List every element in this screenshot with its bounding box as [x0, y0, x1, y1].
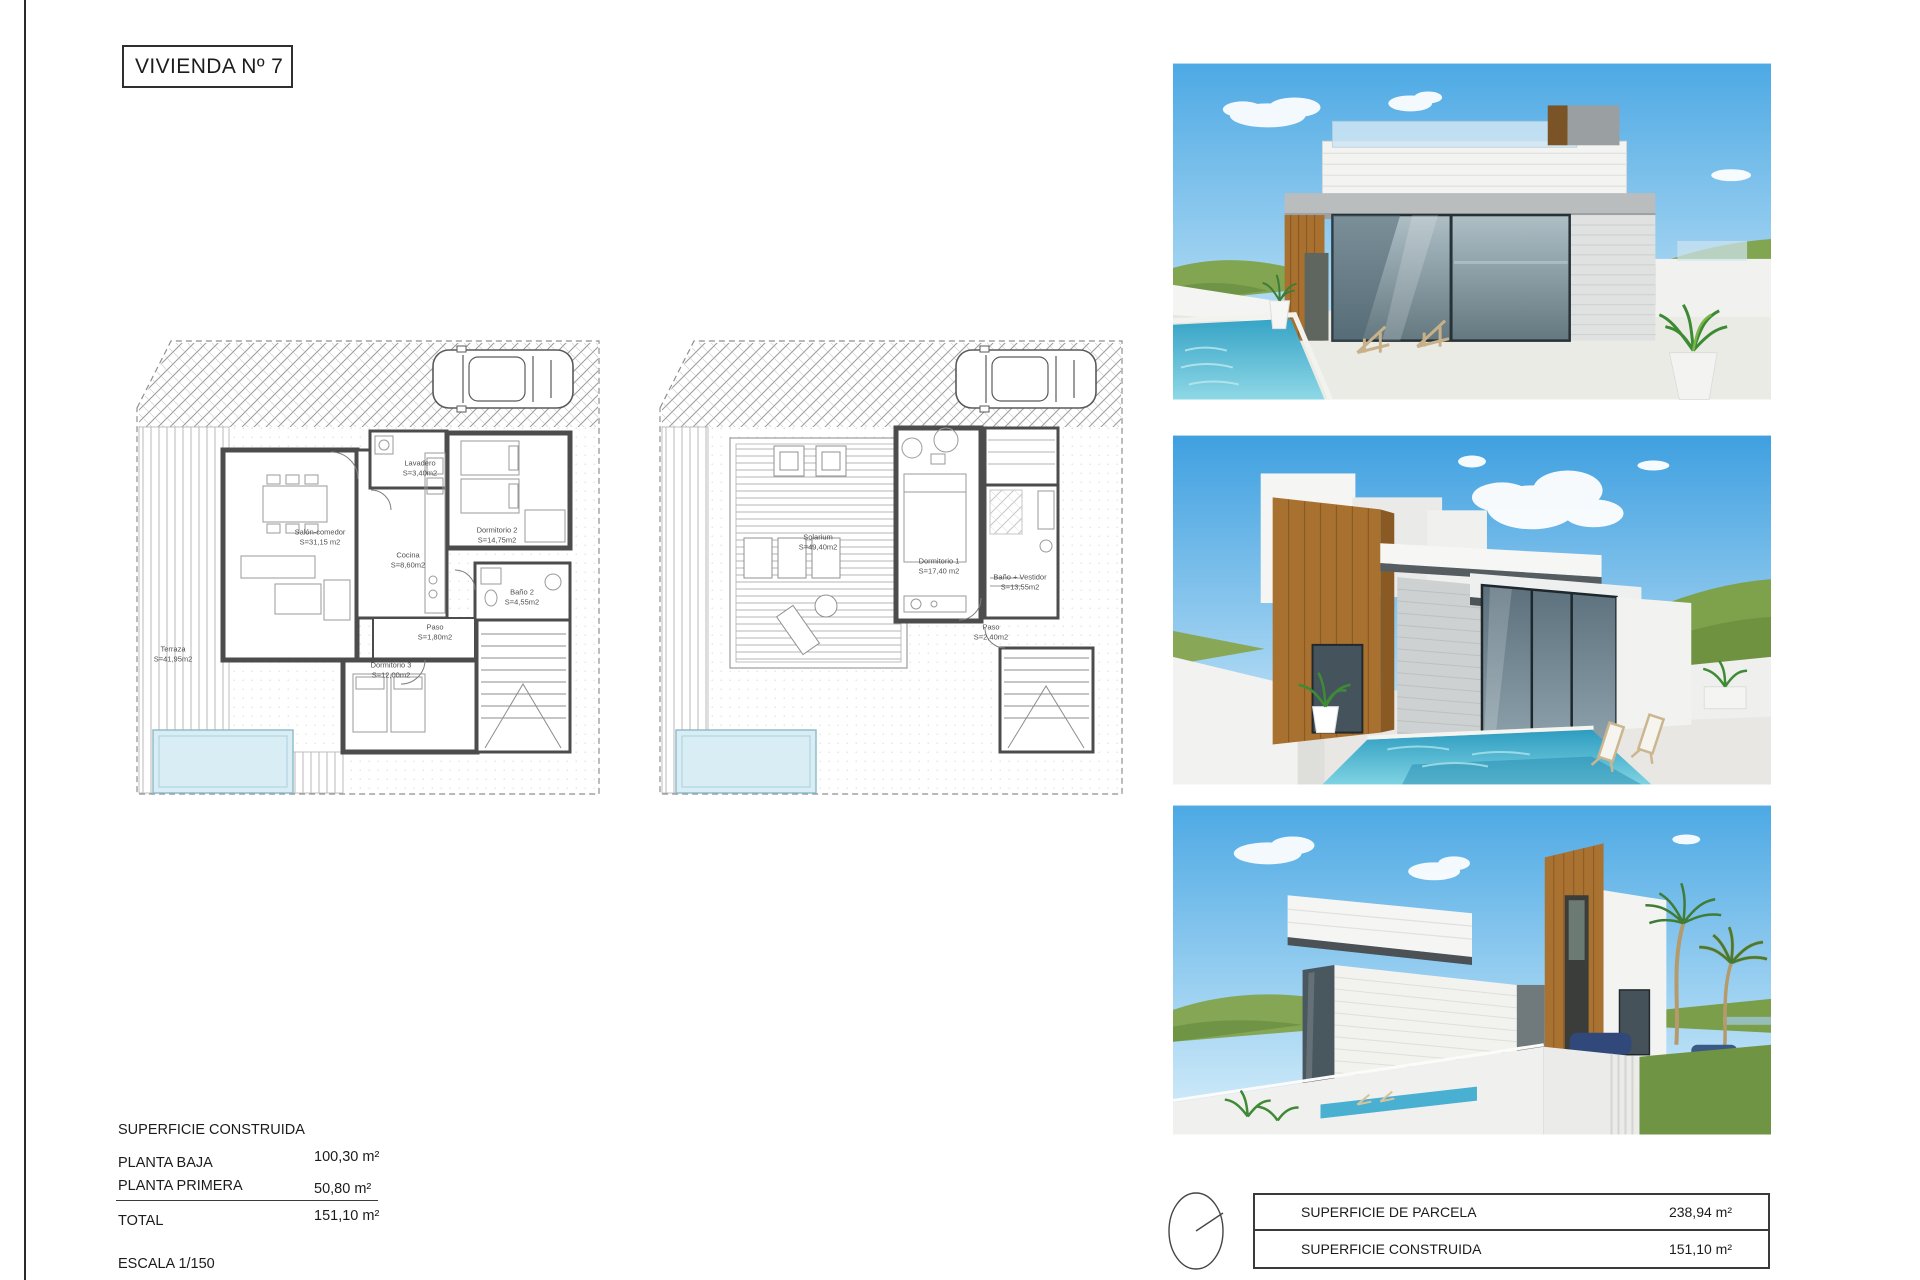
summary-total-value: 151,10 m²	[314, 1208, 379, 1224]
summary-row-value: 50,80 m²	[314, 1181, 371, 1197]
grass-right	[1639, 1045, 1771, 1135]
summary-total-label: TOTAL	[118, 1213, 163, 1229]
room-label-solarium: SolariumS=49,40m2	[799, 532, 838, 552]
plan-sheet: { "title": { "label": "VIVIENDA Nº 7" },…	[0, 0, 1920, 1280]
car-icon	[956, 346, 1096, 412]
table-row-value: 238,94 m²	[1669, 1204, 1732, 1220]
north-indicator	[1166, 1190, 1228, 1272]
table-row: SUPERFICIE DE PARCELA 238,94 m²	[1255, 1195, 1768, 1231]
parapet	[1323, 141, 1627, 195]
compass-needle	[1196, 1213, 1223, 1231]
page-title: VIVIENDA Nº 7	[135, 55, 283, 79]
scale-note: ESCALA 1/150	[118, 1256, 215, 1272]
table-row-label: SUPERFICIE DE PARCELA	[1255, 1204, 1477, 1220]
table-row: SUPERFICIE CONSTRUIDA 151,10 m²	[1255, 1231, 1768, 1267]
planta-primera-drawing	[648, 328, 1128, 808]
table-row-label: SUPERFICIE CONSTRUIDA	[1255, 1241, 1481, 1257]
roof-glass-railing	[1332, 121, 1576, 147]
room-label-bano2: Baño 2S=4,55m2	[505, 587, 539, 607]
floor-plan-planta-primera: SolariumS=49,40m2 Dormitorio 1S=17,40 m2…	[648, 328, 1128, 808]
title-box: VIVIENDA Nº 7	[122, 45, 293, 88]
render-street-view	[1173, 805, 1771, 1135]
floor-plan-planta-baja: LavaderoS=3,40m2 Dormitorio 2S=14,75m2 S…	[125, 328, 605, 808]
room-label-terraza: TerrazaS=41,95m2	[154, 644, 193, 664]
room-label-dormitorio3: Dormitorio 3S=12,00m2	[371, 660, 412, 680]
roof-slab	[1285, 193, 1656, 215]
room-label-bano-vestidor: Baño + VestidorS=13,55m2	[993, 572, 1046, 592]
sea-horizon	[1723, 1017, 1771, 1025]
side-doorway	[1305, 253, 1329, 341]
glass-fence	[1677, 241, 1747, 261]
summary-row-label: PLANTA PRIMERA	[118, 1178, 243, 1194]
pool-plan	[153, 730, 293, 793]
summary-divider	[116, 1200, 378, 1201]
planta-baja-drawing	[125, 328, 605, 808]
rear-wall-right	[1655, 259, 1771, 317]
room-label-paso-p1: PasoS=2,40m2	[974, 622, 1008, 642]
summary-row-value: 100,30 m²	[314, 1149, 379, 1165]
surface-summary: SUPERFICIE CONSTRUIDA PLANTA BAJA 100,30…	[116, 1118, 396, 1278]
room-label-salon-comedor: Salón-comedorS=31,15 m2	[295, 527, 346, 547]
room-label-paso: PasoS=1,80m2	[418, 622, 452, 642]
summary-row-label: PLANTA BAJA	[118, 1155, 213, 1171]
room-label-dormitorio1: Dormitorio 1S=17,40 m2	[919, 556, 960, 576]
parcel-info-table: SUPERFICIE DE PARCELA 238,94 m² SUPERFIC…	[1253, 1193, 1770, 1269]
room-label-cocina: CocinaS=8,60m2	[391, 550, 425, 570]
sheet-border-line	[24, 0, 26, 1280]
pool-plan	[676, 730, 816, 793]
car-icon	[433, 346, 573, 412]
room-label-lavadero: LavaderoS=3,40m2	[403, 458, 437, 478]
room-label-dormitorio2: Dormitorio 2S=14,75m2	[477, 525, 518, 545]
white-volume-right	[1617, 597, 1692, 730]
render-front-view	[1173, 63, 1771, 400]
roof-wood-block	[1548, 105, 1568, 145]
siding-pillar	[1570, 215, 1656, 341]
table-row-value: 151,10 m²	[1669, 1241, 1732, 1257]
summary-heading: SUPERFICIE CONSTRUIDA	[118, 1122, 305, 1138]
render-pool-view	[1173, 435, 1771, 785]
